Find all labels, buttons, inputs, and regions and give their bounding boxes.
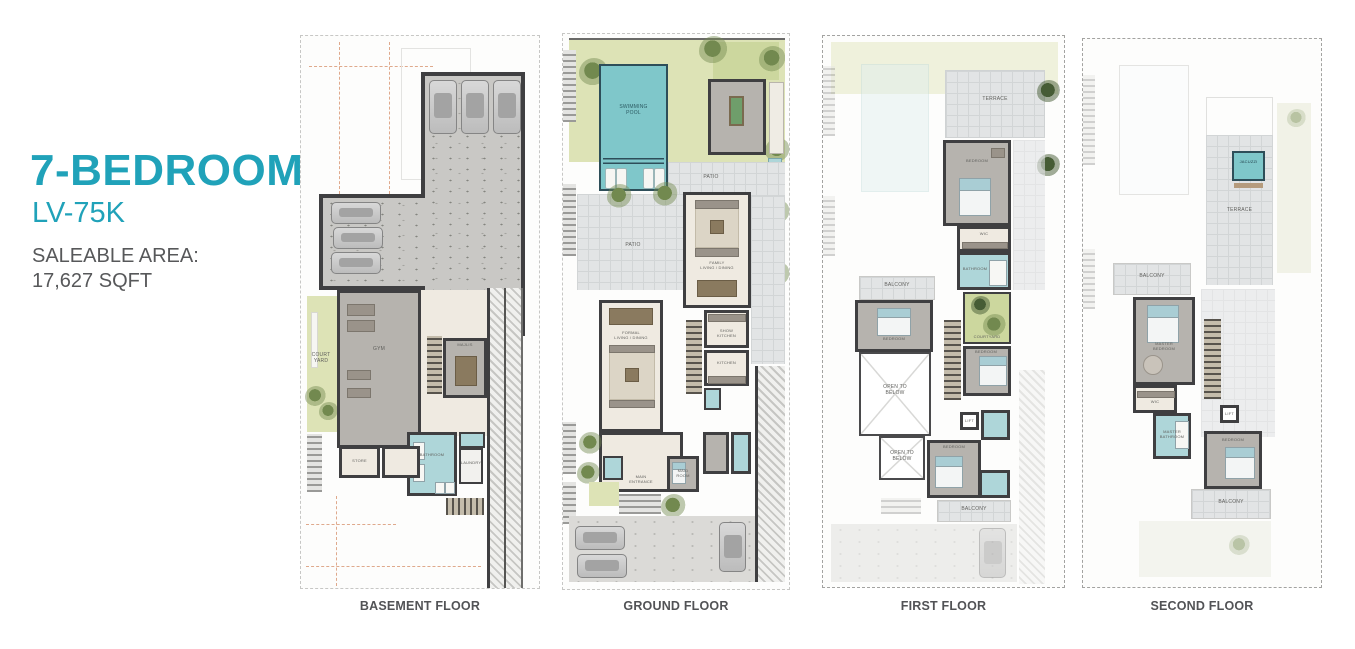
room-label-wic: WIC: [957, 231, 1011, 236]
gym-equipment: [347, 370, 371, 380]
lawn-ghost: [1139, 521, 1271, 577]
room-label-courtyard: COURTYARD: [963, 334, 1011, 339]
bath-fixture: [445, 482, 455, 494]
wardrobe: [1137, 391, 1175, 398]
room-label-store: STORE: [339, 458, 380, 463]
room-label-courtyard: COURT YARD: [303, 352, 339, 365]
car-icon: [979, 528, 1006, 578]
store-room: [382, 446, 420, 478]
chaise-chair: [1143, 355, 1163, 375]
bench: [991, 148, 1005, 158]
floorplan-second: TERRACE JACUZZI BALCONY MASTER BEDROOM W…: [1082, 38, 1322, 588]
coffee-table: [625, 368, 639, 382]
walkway: [751, 196, 785, 364]
floorplan-first: TERRACE BEDROOM WIC BATHROOM COURTYARD B…: [822, 35, 1065, 588]
gym-equipment: [347, 304, 375, 316]
pool-table: [729, 96, 744, 126]
room-label-entrance: MAIN ENTRANCE: [615, 474, 667, 484]
sofa: [609, 345, 655, 353]
deck-steps-ghost: [823, 66, 835, 136]
tree-icon: [1287, 109, 1307, 129]
construction-line: [306, 566, 481, 567]
deck-steps: [563, 184, 576, 256]
stairs: [686, 320, 702, 394]
tree-icon: [971, 296, 991, 316]
car-icon: [429, 80, 457, 134]
coffee-table: [710, 220, 724, 234]
ramp-center-line: [504, 288, 506, 588]
entrance-steps: [619, 494, 661, 514]
bed-icon: [1147, 305, 1179, 343]
room-label-master-bathroom: MASTER BATHROOM: [1151, 429, 1193, 439]
kitchen-counter: [708, 314, 746, 322]
walkway-ghost: [1013, 140, 1045, 290]
gym-equipment: [347, 388, 371, 398]
room-label-terrace: TERRACE: [1206, 207, 1273, 213]
ramp-ghost: [1019, 370, 1045, 584]
saleable-area-value: 17,627 SQFT: [32, 270, 152, 293]
tree-icon: [319, 402, 339, 422]
guest-bedroom: [703, 432, 729, 474]
table: [455, 356, 477, 386]
deck-steps: [563, 50, 576, 122]
construction-line: [336, 496, 337, 586]
construction-line: [339, 42, 340, 194]
kitchen-counter: [708, 376, 746, 384]
stairs: [446, 498, 484, 515]
floorplan-brochure-page: { "header": { "title": "7-BEDROOM", "sub…: [0, 0, 1355, 649]
floor-caption-basement: BASEMENT FLOOR: [300, 599, 540, 615]
tree-icon: [653, 182, 679, 208]
room-label-formal: FORMAL LIVING / DINING: [599, 330, 663, 340]
room-label-gym: GYM: [337, 346, 421, 352]
lawn-patch: [589, 482, 619, 506]
powder-room: [704, 388, 721, 410]
room-label-laundry: LAUNDRY: [457, 460, 485, 465]
car-icon: [493, 80, 521, 134]
tree-icon: [607, 184, 633, 210]
dining-table: [697, 280, 737, 297]
stairs: [1204, 319, 1221, 399]
room-label-terrace: TERRACE: [945, 96, 1045, 102]
deck-steps-ghost: [1083, 249, 1095, 309]
car-icon: [331, 202, 381, 224]
bathroom: [979, 470, 1010, 498]
car-icon: [577, 554, 627, 578]
room-label-master-bedroom: MASTER BEDROOM: [1135, 341, 1193, 351]
room-label-bedroom: BEDROOM: [963, 349, 1009, 354]
bed-icon: [877, 308, 911, 336]
room-label-pool: SWIMMING POOL: [599, 104, 668, 117]
room-label-open-below: OPEN TO BELOW: [859, 384, 931, 397]
room-label-balcony: BALCONY: [937, 506, 1011, 512]
roof-deck: [1206, 97, 1273, 137]
room-label-lift: LIFT: [960, 418, 979, 423]
laundry-room: [459, 448, 483, 484]
bed-icon: [959, 178, 991, 216]
room-label-majlis: MAJLIS: [443, 342, 487, 347]
jacuzzi: [1232, 151, 1265, 181]
dining-table: [609, 308, 653, 325]
sofa: [609, 400, 655, 408]
gym-equipment: [347, 320, 375, 332]
room-label-bedroom: BEDROOM: [857, 336, 931, 341]
room-label-jacuzzi: JACUZZI: [1232, 159, 1265, 164]
deck-steps: [563, 422, 576, 474]
pool-ghost: [861, 64, 929, 192]
sofa: [695, 248, 739, 257]
bath-fixture: [435, 482, 445, 494]
bed-icon: [1225, 447, 1255, 479]
room-label-bathroom: BATHROOM: [957, 266, 993, 271]
room-label-wic: WIC: [1133, 399, 1177, 404]
stairs: [944, 320, 961, 400]
stairs: [427, 336, 442, 394]
room-label-kitchen: KITCHEN: [704, 360, 749, 365]
construction-line: [389, 42, 390, 194]
room-label-bedroom: BEDROOM: [1206, 437, 1260, 442]
car-icon: [719, 522, 746, 572]
page-title: 7-BEDROOM: [30, 146, 303, 196]
entrance-steps-ghost: [881, 498, 921, 514]
saleable-area-label: SALEABLE AREA:: [32, 245, 199, 268]
bed-icon: [979, 356, 1007, 386]
floor-caption-first: FIRST FLOOR: [822, 599, 1065, 615]
wardrobe: [962, 242, 1008, 249]
tree-icon: [759, 46, 787, 74]
floor-caption-ground: GROUND FLOOR: [562, 599, 790, 615]
bathtub: [989, 260, 1007, 286]
room-label-patio: PATIO: [593, 242, 673, 248]
floorplan-ground: SWIMMING POOL PATIO PATIO FAMILY LIVING …: [562, 33, 790, 590]
room-label-bedroom: BEDROOM: [943, 158, 1011, 163]
tree-icon: [699, 36, 729, 66]
deck-steps-ghost: [823, 196, 835, 256]
room-label-bedroom: BEDROOM: [929, 444, 979, 449]
jacuzzi-step: [1234, 183, 1263, 188]
room-label-bathroom: BATHROOM: [407, 452, 457, 457]
roof-outline-ghost: [1119, 65, 1189, 195]
car-icon: [333, 227, 383, 249]
bathroom: [981, 410, 1010, 440]
floor-caption-second: SECOND FLOOR: [1082, 599, 1322, 615]
service-annex: [769, 82, 784, 154]
room-label-family: FAMILY LIVING / DINING: [683, 260, 751, 270]
car-icon: [461, 80, 489, 134]
unit-code: LV-75K: [32, 197, 125, 230]
driveway-ramp: [755, 366, 785, 582]
room-label-lift: LIFT: [1220, 411, 1239, 416]
room-label-open-below: OPEN TO BELOW: [879, 450, 925, 463]
powder-room: [459, 432, 485, 448]
room-label-balcony: BALCONY: [859, 282, 935, 288]
sofa: [695, 200, 739, 209]
tree-icon: [1229, 535, 1251, 557]
car-icon: [575, 526, 625, 550]
guest-ensuite: [731, 432, 751, 474]
tree-icon: [579, 432, 603, 456]
floorplan-basement: COURT YARD GYM MAJLIS BATHROOM LAUNDRY S…: [300, 35, 540, 589]
room-label-patio: PATIO: [681, 174, 741, 180]
pool-lounger: [643, 168, 654, 189]
room-label-balcony: BALCONY: [1191, 499, 1271, 505]
terrace: [945, 70, 1045, 138]
room-label-maid: MAID ROOM: [667, 468, 699, 478]
room-label-show-kitchen: SHOW KITCHEN: [704, 328, 749, 338]
pool-lane-lines: [603, 156, 664, 164]
room-label-balcony: BALCONY: [1113, 273, 1191, 279]
car-icon: [331, 252, 381, 274]
bed-icon: [935, 456, 963, 488]
construction-line: [306, 524, 396, 525]
stairs: [307, 434, 322, 492]
deck-steps-ghost: [1083, 75, 1095, 165]
